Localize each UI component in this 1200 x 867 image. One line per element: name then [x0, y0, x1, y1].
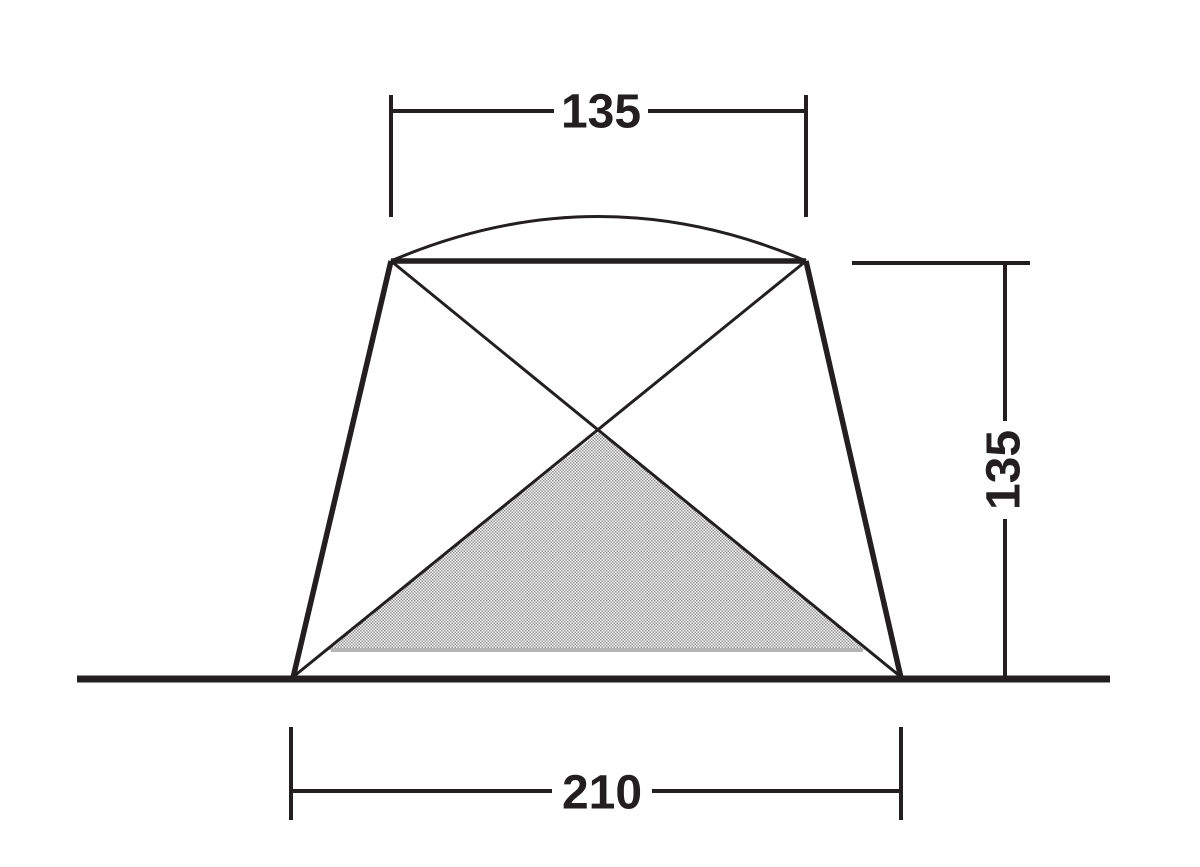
top-width-label: 135 — [561, 86, 641, 139]
side-height-label: 135 — [978, 430, 1031, 510]
shaded-floor-triangle — [326, 432, 868, 650]
tent-dimension-diagram: 135 135 210 — [0, 0, 1200, 867]
roof-arc — [391, 217, 806, 262]
dimension-base-width: 210 — [291, 727, 901, 820]
dimension-side-height: 135 — [852, 263, 1031, 677]
base-width-label: 210 — [562, 767, 642, 820]
dimension-top-width: 135 — [391, 86, 806, 218]
diagram-canvas: 135 135 210 — [0, 0, 1200, 867]
